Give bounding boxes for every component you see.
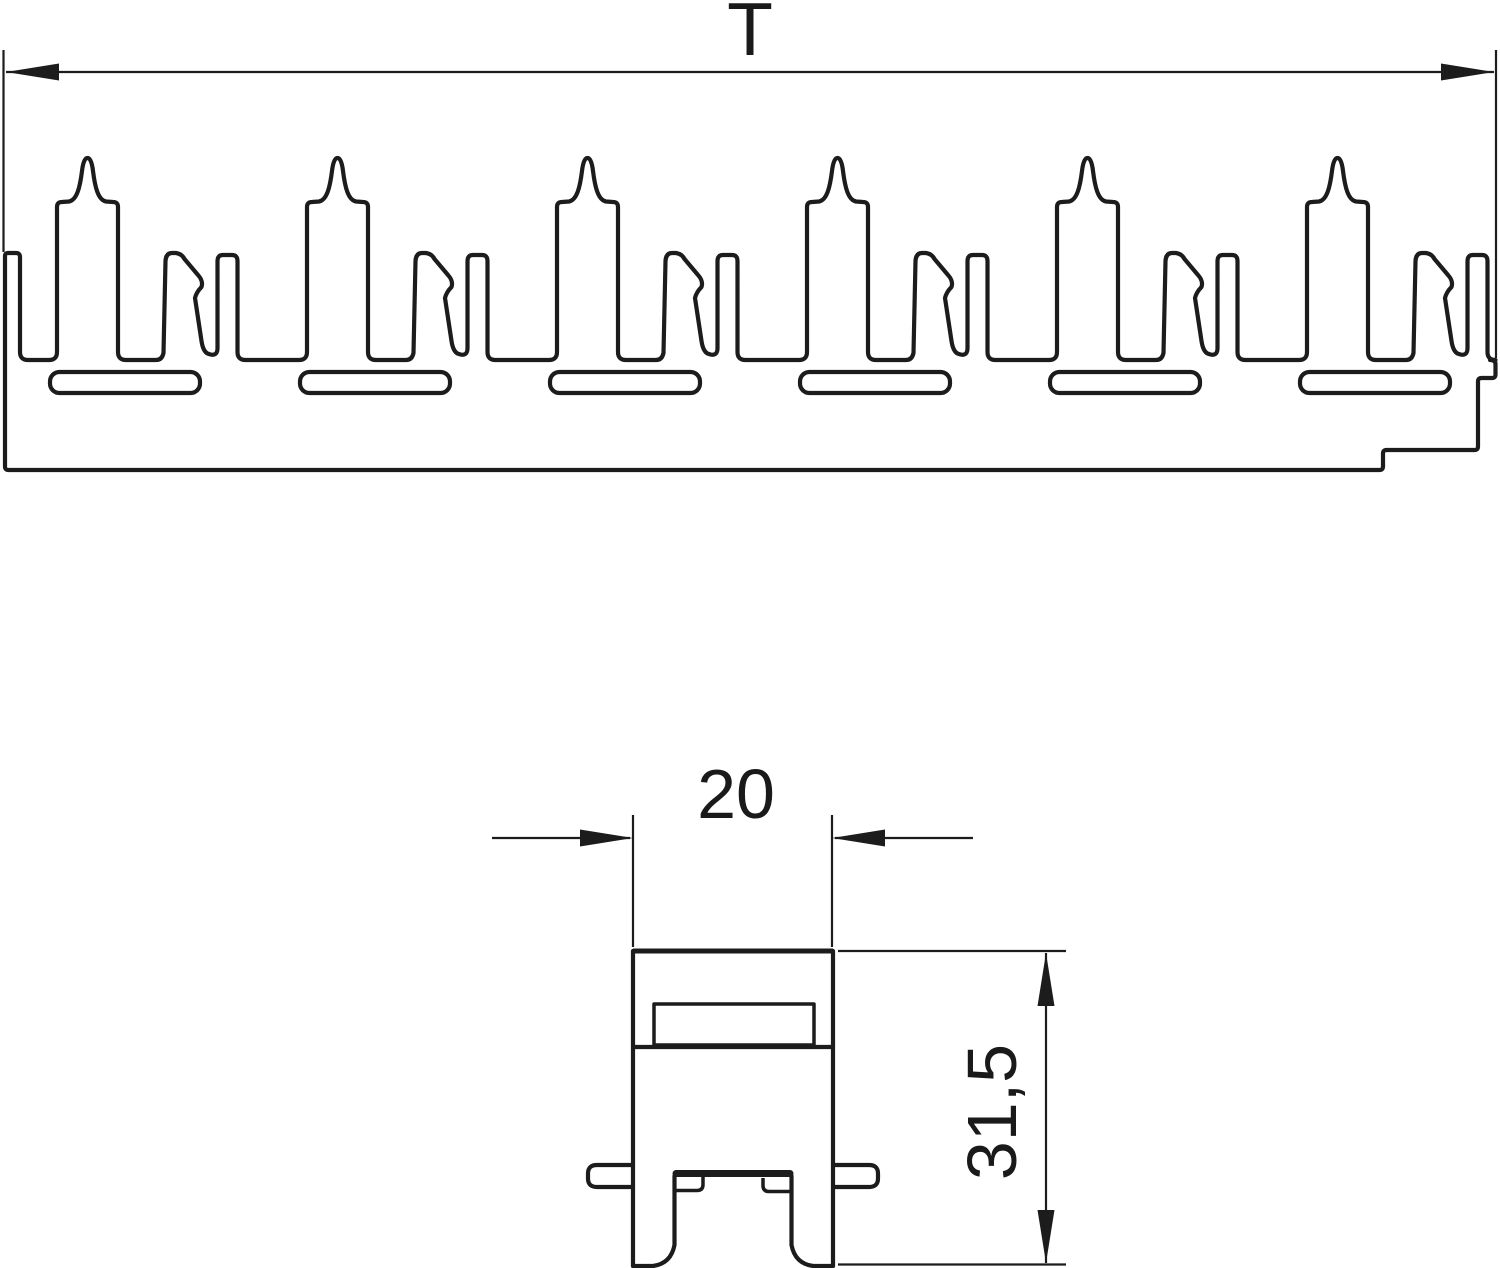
clamp-slot-left-step <box>676 1177 703 1191</box>
dimension-clamp-width-label: 20 <box>697 755 775 833</box>
arrow-left-icon <box>832 830 885 847</box>
profile-slot-hole <box>300 372 450 393</box>
dimension-overall-width: T <box>4 0 1497 358</box>
clamp-front-view: 20 <box>492 755 1066 1266</box>
arrow-left-icon <box>6 64 59 81</box>
dimension-clamp-width: 20 <box>492 755 973 947</box>
clamp-bottom-left <box>633 1176 675 1266</box>
dimension-overall-width-label: T <box>727 0 773 71</box>
profile-slot-hole <box>1300 372 1450 393</box>
clamp-bottom-right <box>792 1176 834 1266</box>
clamp-left-ear <box>588 1165 633 1187</box>
clamp-right-ear <box>833 1165 878 1187</box>
dimension-clamp-height: 31,5 <box>838 951 1066 1265</box>
clamp-body <box>588 951 878 1266</box>
profile-slot-hole <box>800 372 950 393</box>
profile-slot-hole <box>550 372 700 393</box>
clamp-slot-right-step <box>763 1178 790 1192</box>
clamp-strip-outline <box>5 158 1496 470</box>
clamp-window <box>654 1004 814 1045</box>
profile-outline-group <box>5 158 1496 470</box>
profile-slot-hole <box>1050 372 1200 393</box>
arrow-right-icon <box>580 830 633 847</box>
arrow-down-icon <box>1038 1210 1055 1263</box>
arrow-right-icon <box>1441 64 1494 81</box>
arrow-up-icon <box>1038 953 1055 1006</box>
technical-drawing-canvas: T 20 <box>0 0 1500 1268</box>
dimension-clamp-height-label: 31,5 <box>953 1044 1031 1180</box>
profile-slot-hole <box>50 372 200 393</box>
profile-side-view: T <box>4 0 1497 470</box>
